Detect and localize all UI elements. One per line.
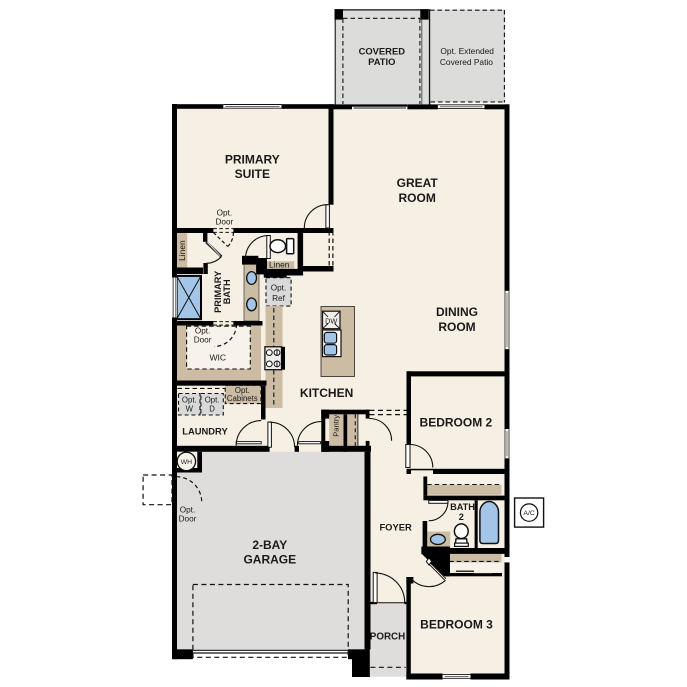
svg-text:ROOM: ROOM (438, 320, 475, 334)
svg-text:Door: Door (179, 515, 197, 524)
svg-text:PATIO: PATIO (368, 56, 395, 67)
svg-text:PRIMARY: PRIMARY (225, 152, 280, 166)
svg-text:Door: Door (216, 218, 234, 227)
svg-text:Door: Door (194, 336, 212, 345)
svg-text:Linen: Linen (177, 240, 187, 261)
svg-text:W: W (186, 404, 194, 413)
svg-text:Opt.: Opt. (180, 506, 195, 515)
svg-text:ROOM: ROOM (399, 191, 436, 205)
svg-text:WH: WH (181, 459, 192, 466)
svg-text:Cabinets: Cabinets (227, 394, 258, 403)
svg-text:GREAT: GREAT (397, 176, 439, 190)
svg-text:Opt.: Opt. (205, 396, 220, 405)
svg-text:2-BAY: 2-BAY (252, 538, 287, 552)
svg-text:Opt.: Opt. (182, 396, 197, 405)
svg-text:FOYER: FOYER (379, 522, 412, 533)
svg-text:COVERED: COVERED (359, 45, 406, 56)
svg-text:Opt.: Opt. (195, 326, 210, 335)
svg-text:2: 2 (459, 512, 464, 522)
svg-text:DINING: DINING (436, 305, 478, 319)
svg-text:A/C: A/C (523, 510, 534, 517)
svg-text:D: D (209, 404, 215, 413)
svg-text:Opt.: Opt. (271, 283, 286, 292)
svg-text:Pantry: Pantry (332, 415, 341, 437)
svg-text:GARAGE: GARAGE (243, 553, 296, 567)
svg-text:LAUNDRY: LAUNDRY (182, 425, 228, 436)
svg-text:WIC: WIC (209, 353, 226, 363)
svg-text:Opt.: Opt. (217, 208, 232, 217)
svg-text:PORCH: PORCH (370, 632, 405, 643)
svg-text:Covered Patio: Covered Patio (440, 57, 493, 67)
svg-text:Ref: Ref (272, 294, 285, 303)
svg-text:BATH: BATH (450, 502, 475, 512)
svg-text:BEDROOM 2: BEDROOM 2 (420, 416, 493, 430)
svg-text:DW: DW (325, 316, 337, 325)
svg-text:Linen: Linen (269, 259, 290, 269)
svg-text:SUITE: SUITE (235, 167, 270, 181)
svg-text:BATH: BATH (222, 279, 232, 304)
svg-text:BEDROOM 3: BEDROOM 3 (420, 618, 493, 632)
svg-text:KITCHEN: KITCHEN (300, 386, 353, 400)
svg-text:Opt. Extended: Opt. Extended (440, 46, 494, 56)
